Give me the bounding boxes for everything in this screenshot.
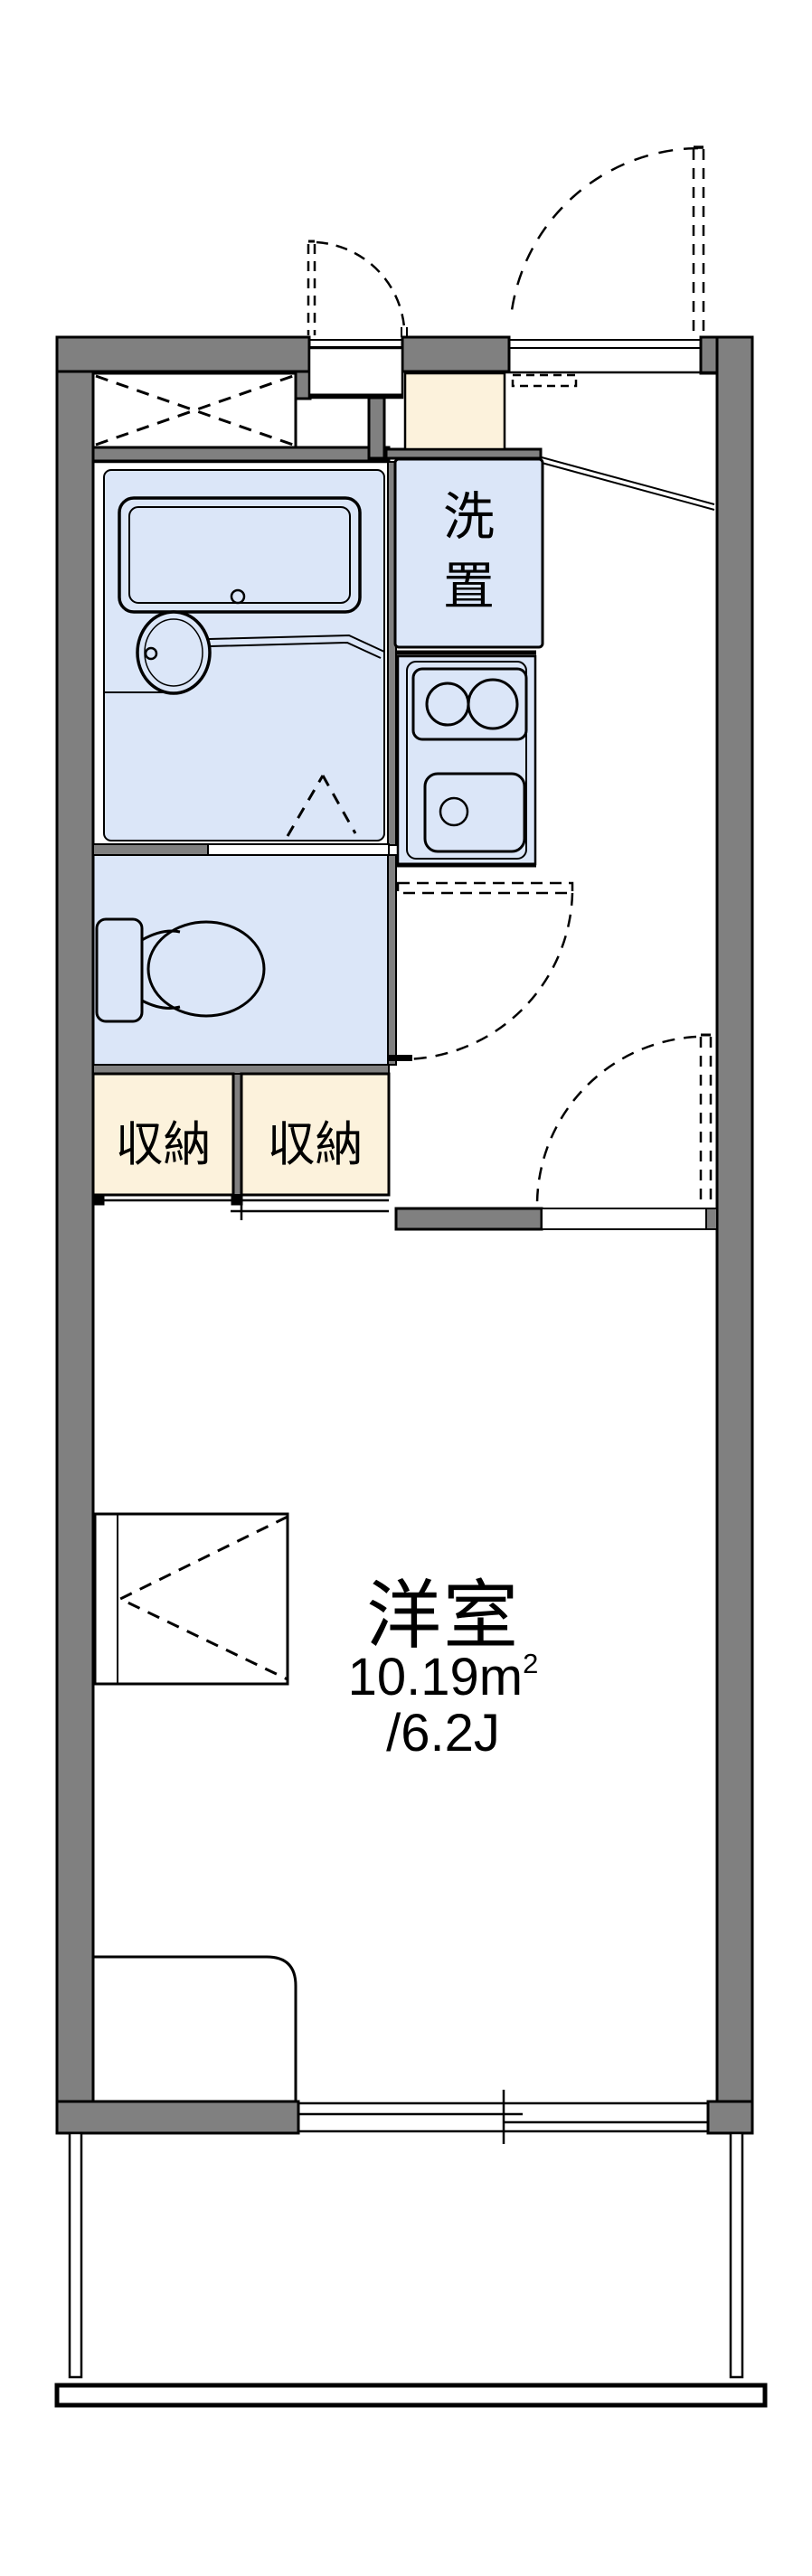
basin-faucet [146, 648, 156, 659]
shoe-closet [93, 373, 296, 447]
floor-plan-drawing [0, 0, 812, 2576]
room-door [537, 1035, 711, 1229]
storage-left-label: 収納 [93, 1106, 233, 1175]
bathroom-door [208, 844, 389, 855]
western-room-area-tatami: /6.2J [298, 1703, 588, 1763]
storage-right-label: 収納 [241, 1106, 389, 1175]
genkan-step [405, 373, 505, 449]
bed [93, 1957, 296, 2101]
entry-door-swing-arc [511, 148, 698, 317]
entry-door [511, 147, 703, 337]
hall-door-kitchen [388, 883, 572, 1061]
balcony-side-left [70, 2133, 81, 2377]
bathroom [93, 462, 389, 855]
small-door-alcove [309, 348, 402, 398]
sliding-window [298, 2090, 708, 2144]
balcony-side-right [731, 2133, 742, 2377]
washer-space-label: 洗 置 [395, 483, 543, 622]
bathtub-drain [231, 590, 244, 603]
toilet [97, 919, 264, 1021]
balcony [57, 2133, 765, 2405]
toilet-bowl [148, 922, 264, 1016]
kitchen-unit [398, 656, 535, 864]
balcony-railing [57, 2385, 765, 2405]
door-swing-arc [403, 893, 572, 1059]
toilet-tank [97, 919, 142, 1021]
door-swing-arc [316, 242, 404, 327]
entry-door-closed-dashed [513, 375, 576, 386]
entry-step-edge [542, 457, 714, 504]
door-swing-arc [537, 1037, 696, 1205]
desk [95, 1514, 288, 1684]
room-doorway [542, 1208, 706, 1229]
floor-plan: 洗 置 収納 収納 洋室 10.19m2 /6.2J [0, 0, 812, 2576]
small-swing-door [308, 241, 404, 335]
western-room-area: 10.19m2 [298, 1647, 588, 1707]
